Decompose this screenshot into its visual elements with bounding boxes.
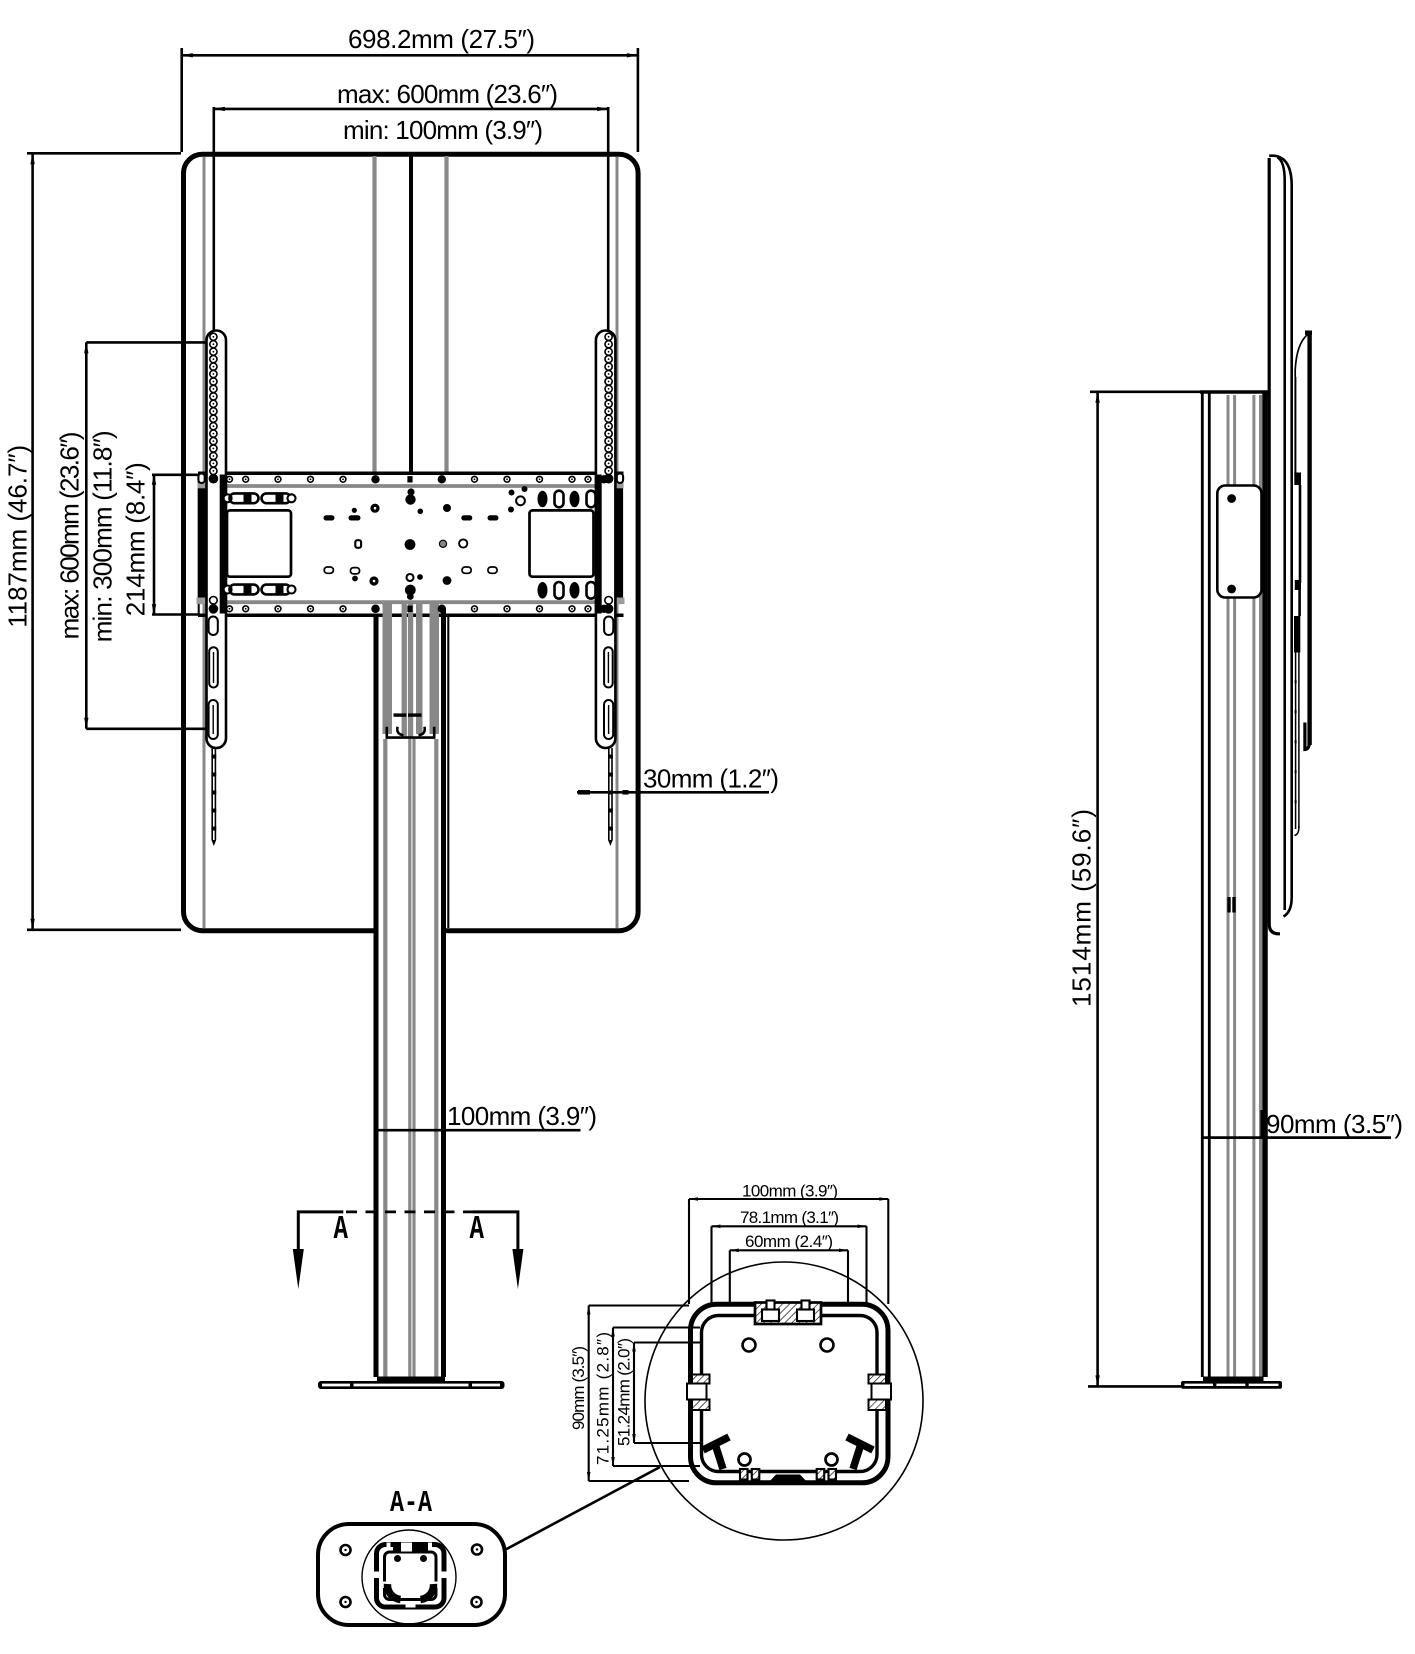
svg-text:max: 600mm (23.6″): max: 600mm (23.6″)	[55, 431, 85, 639]
svg-text:100mm (3.9″): 100mm (3.9″)	[742, 1181, 838, 1200]
svg-text:A-A: A-A	[390, 1486, 432, 1521]
svg-text:A: A	[334, 1211, 349, 1248]
svg-text:90mm (3.5″): 90mm (3.5″)	[1266, 1109, 1403, 1139]
svg-text:71.25mm (2.8″): 71.25mm (2.8″)	[594, 1332, 613, 1465]
svg-text:30mm (1.2″): 30mm (1.2″)	[643, 764, 779, 794]
svg-text:A: A	[470, 1211, 485, 1248]
svg-text:min: 300mm (11.8″): min: 300mm (11.8″)	[88, 430, 118, 642]
svg-text:78.1mm (3.1″): 78.1mm (3.1″)	[740, 1208, 839, 1227]
svg-text:1514mm (59.6″): 1514mm (59.6″)	[1067, 809, 1097, 1007]
svg-text:1187mm (46.7″): 1187mm (46.7″)	[3, 445, 33, 628]
svg-text:min: 100mm (3.9″): min: 100mm (3.9″)	[343, 115, 543, 145]
svg-text:214mm (8.4″): 214mm (8.4″)	[121, 462, 151, 616]
svg-text:max: 600mm (23.6″): max: 600mm (23.6″)	[337, 79, 558, 109]
svg-text:90mm (3.5″): 90mm (3.5″)	[569, 1346, 588, 1430]
svg-text:60mm (2.4″): 60mm (2.4″)	[745, 1232, 833, 1251]
svg-text:100mm (3.9″): 100mm (3.9″)	[447, 1101, 597, 1131]
svg-text:51.24mm (2.0″): 51.24mm (2.0″)	[615, 1338, 634, 1446]
svg-text:698.2mm (27.5″): 698.2mm (27.5″)	[348, 24, 535, 54]
